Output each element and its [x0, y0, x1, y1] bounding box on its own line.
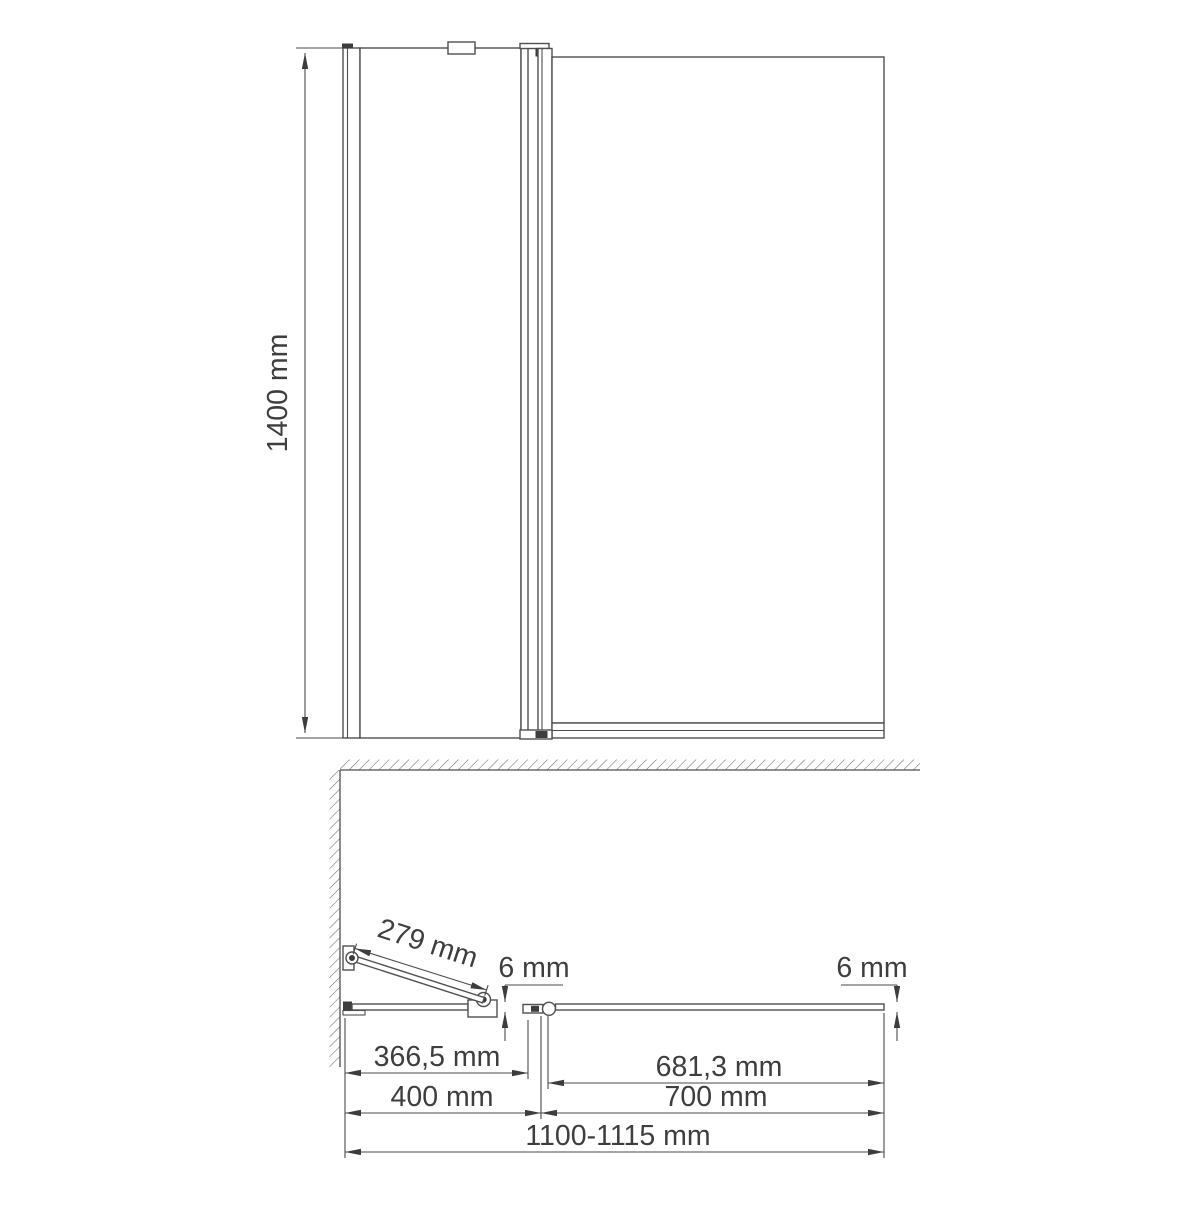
- door-section-width-label: 400 mm: [391, 1081, 494, 1113]
- height-dimension-label: 1400 mm: [262, 334, 294, 453]
- front-elevation-view: 1400 mm: [262, 42, 884, 739]
- wall-profile-base-plan: [343, 1011, 365, 1016]
- wall-hatch-left: [330, 770, 341, 1067]
- fixed-section-width-label: 700 mm: [665, 1081, 768, 1113]
- fixed-panel-stile: [538, 49, 552, 732]
- hinge-block-plan: [531, 1006, 539, 1012]
- fixed-glass-panel: [552, 57, 884, 723]
- hinge-bottom-block: [536, 731, 548, 738]
- fixed-glass-plan: [556, 1004, 885, 1010]
- door-glass-panel: [360, 48, 521, 738]
- hinge-knob-plan: [543, 1002, 556, 1015]
- wall-profile-top-cap: [342, 44, 353, 49]
- door-glass-thickness-label: 6 mm: [498, 952, 569, 984]
- door-top-bracket: [448, 42, 475, 54]
- door-glass-width-label: 366,5 mm: [374, 1041, 501, 1073]
- plan-view: 279 mm 6 mm 6 mm 366,5 mm 681,3 mm 400 m…: [330, 760, 921, 1159]
- fixed-glass-thickness-label: 6 mm: [836, 952, 907, 984]
- technical-drawing: 1400 mm: [0, 0, 1200, 1200]
- fixed-glass-width-label: 681,3 mm: [656, 1051, 783, 1083]
- drawing-canvas: 1400 mm: [0, 0, 1200, 1200]
- total-width-label: 1100-1115 mm: [525, 1120, 710, 1152]
- wall-profile-plan: [343, 1002, 352, 1011]
- wall-profile: [343, 48, 360, 738]
- door-glass-plan-closed: [352, 1004, 468, 1010]
- hinge-top-cap: [520, 44, 549, 49]
- wall-bracket-pin: [349, 955, 355, 961]
- open-door-length-label: 279 mm: [374, 912, 482, 974]
- door-edge-profile: [521, 48, 528, 738]
- wall-hatch-top: [340, 760, 920, 771]
